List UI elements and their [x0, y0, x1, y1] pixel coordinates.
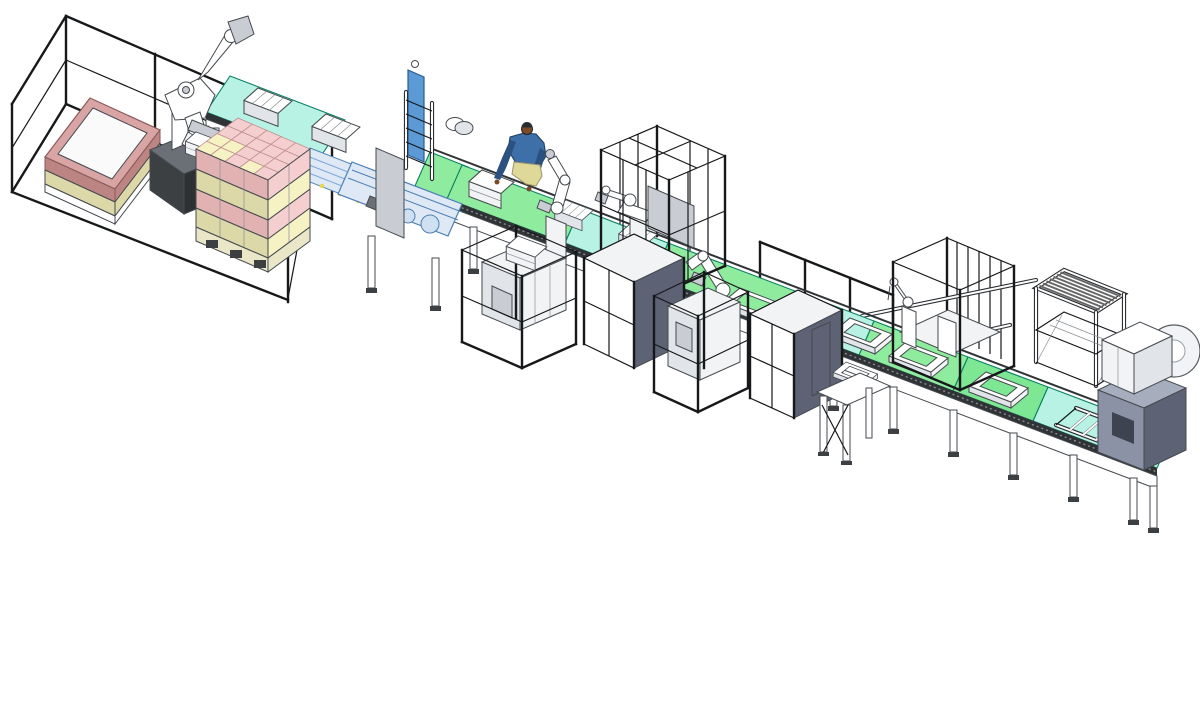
operator-helmet: [522, 122, 533, 128]
side-panel-dark: [812, 322, 830, 396]
film-wrapping-machine: [1098, 322, 1200, 470]
tool-pedestal: [938, 316, 956, 357]
empty-pallet-with-collar: [45, 98, 160, 224]
production-line-scene: [0, 0, 1200, 711]
machine-side-panel: [376, 148, 404, 238]
cad-screenshot: [0, 0, 1200, 711]
